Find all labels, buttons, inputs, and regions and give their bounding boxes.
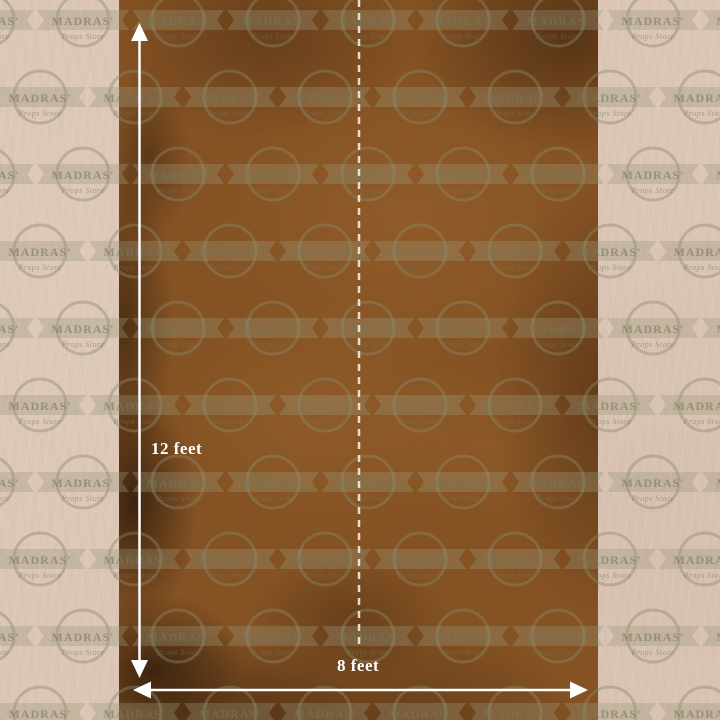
product-image: MADRAS' Props Store MADRAS' Props Store … xyxy=(0,0,720,720)
width-dimension-label: 8 feet xyxy=(337,656,379,676)
backdrop-canvas xyxy=(119,0,598,720)
height-dimension-label: 12 feet xyxy=(151,439,202,459)
